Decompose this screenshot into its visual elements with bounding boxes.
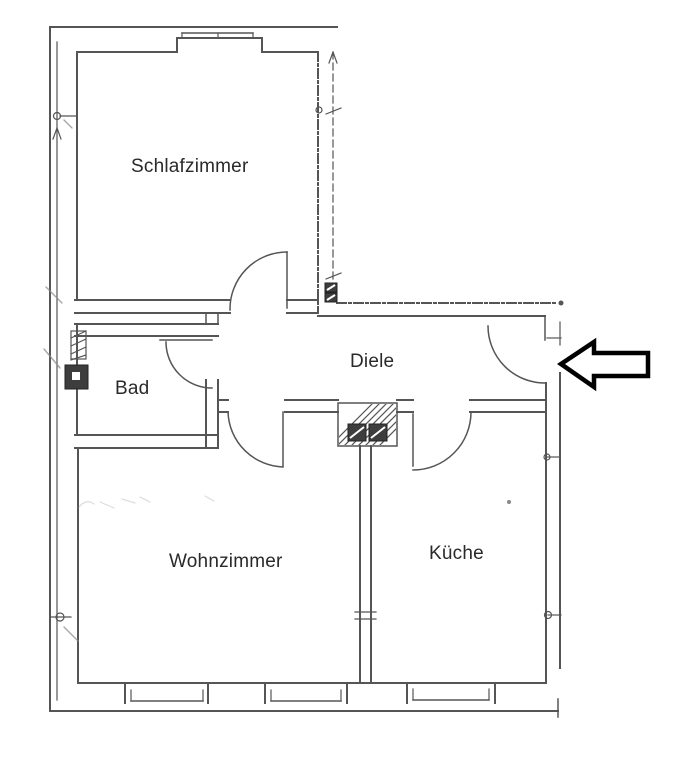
room-label-diele: Diele [350,351,394,373]
room-label-wohnzimmer: Wohnzimmer [169,551,283,573]
diele-walls [318,301,564,346]
wohnzimmer-kueche-north-walls [218,400,546,412]
floor-plan-drawing [0,0,690,757]
outer-walls [50,27,560,717]
room-label-kueche: Küche [429,543,484,565]
schlafzimmer-walls [75,52,318,324]
wall-pier-hatch [325,283,337,302]
floor-plan: Schlafzimmer Bad Diele Wohnzimmer Küche [0,0,690,757]
bad-plumbing-shaft [65,365,88,389]
chimney-block [330,403,422,446]
room-label-bad: Bad [115,378,149,400]
schlafzimmer-door [230,252,287,310]
kueche-door [413,412,471,470]
schlafzimmer-window [177,33,262,52]
kueche-window [407,685,495,703]
entrance-door [488,326,545,383]
wohnzimmer-window-1 [125,685,208,703]
bad-door [160,340,212,388]
wohnzimmer-window-2 [265,685,347,703]
wohnzimmer-door [228,412,283,467]
entrance-arrow-icon [561,342,648,387]
room-label-schlafzimmer: Schlafzimmer [131,156,248,178]
